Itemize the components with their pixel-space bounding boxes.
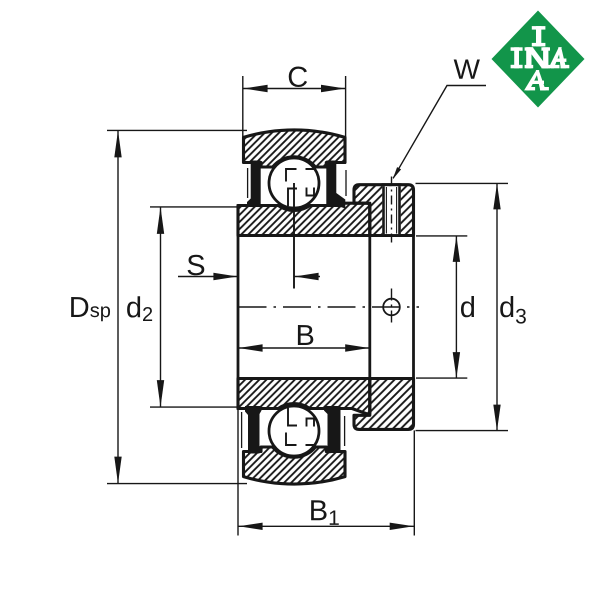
svg-text:B: B <box>295 320 314 352</box>
svg-text:d: d <box>460 292 476 324</box>
svg-text:W: W <box>453 54 480 85</box>
svg-text:C: C <box>287 62 308 94</box>
svg-text:S: S <box>186 250 205 282</box>
